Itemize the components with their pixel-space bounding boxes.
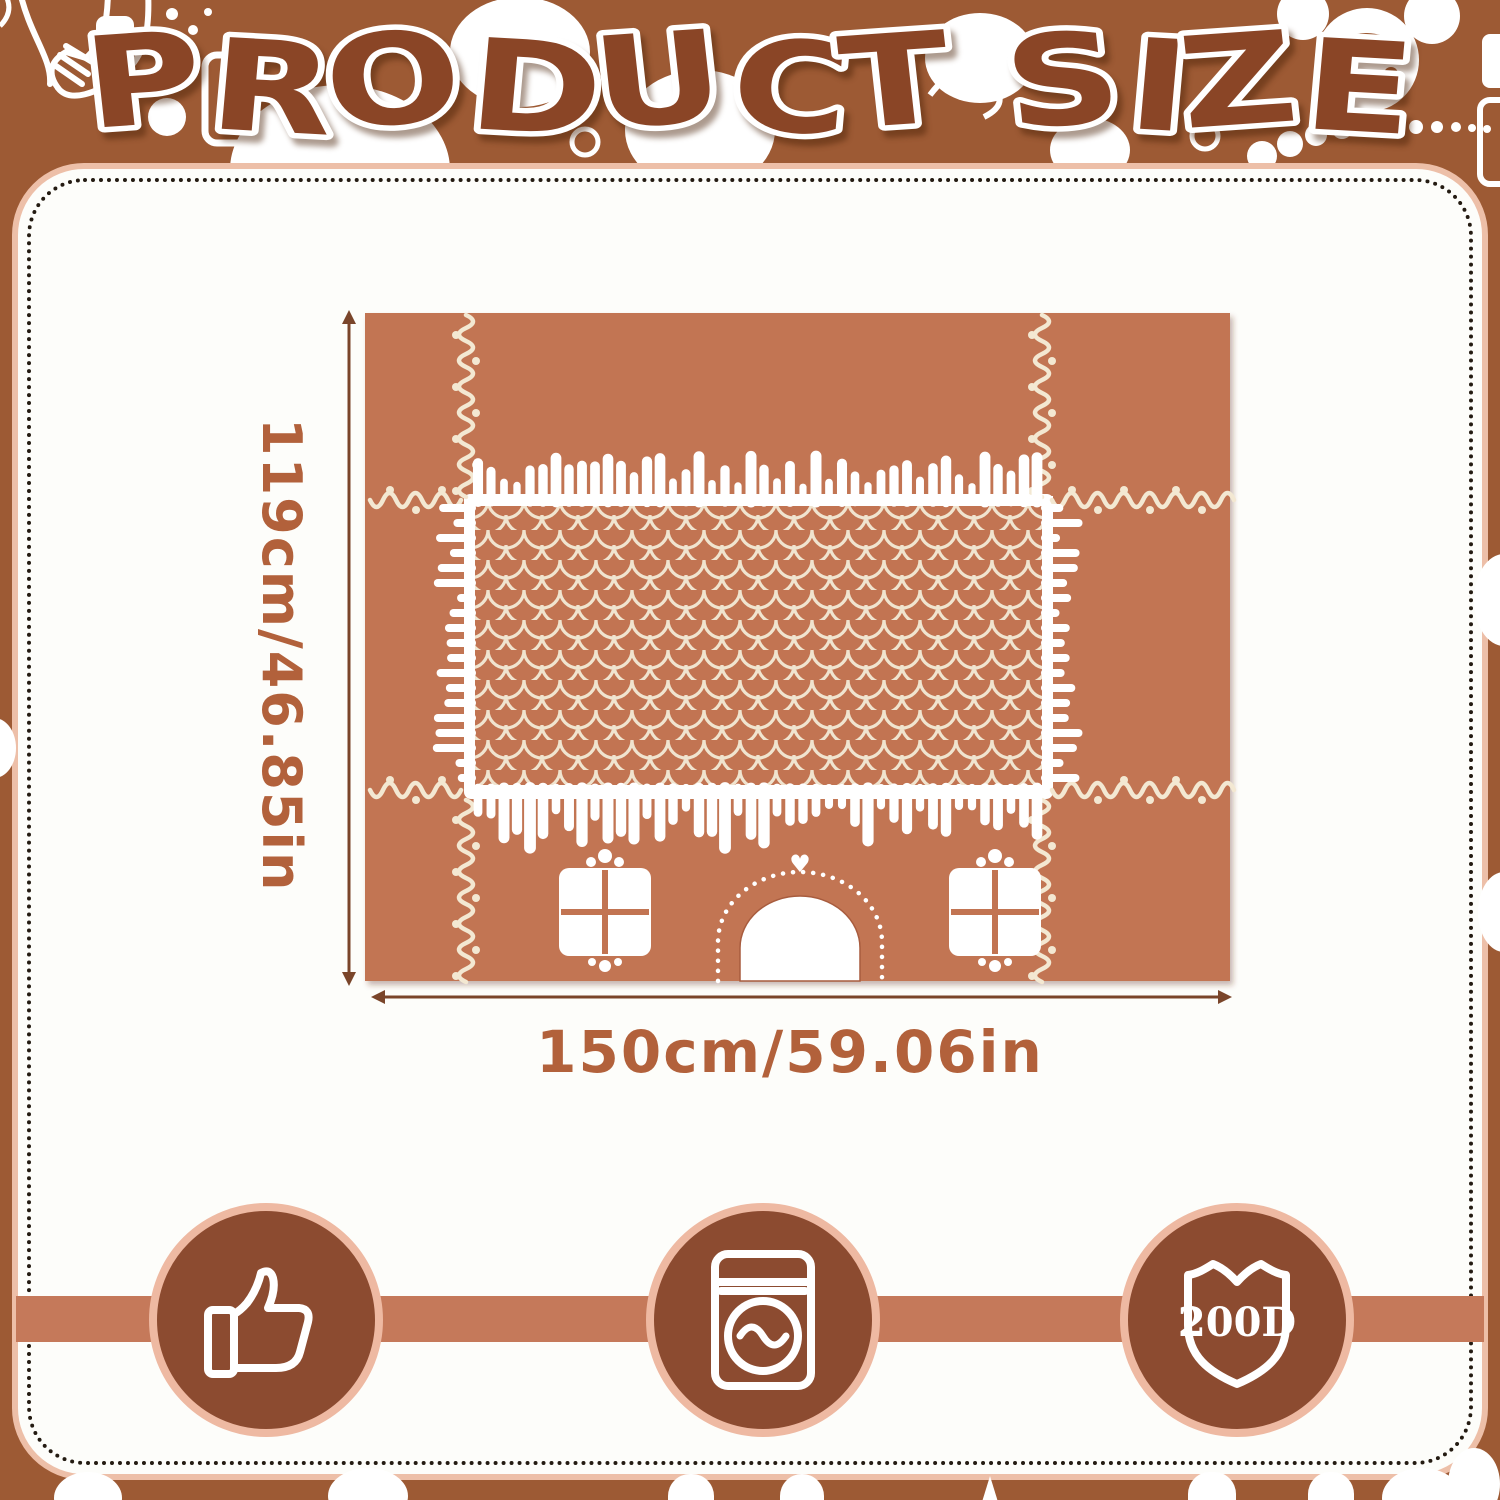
shield-label: 200D [1178, 1299, 1296, 1346]
width-arrow [371, 990, 1232, 1004]
badge-durable: 200D [1120, 1203, 1354, 1437]
washing-machine-icon [685, 1242, 841, 1398]
roof-shingles [470, 500, 1047, 793]
width-label: 150cm/59.06in [330, 1018, 1250, 1086]
shield-icon: 200D [1159, 1242, 1315, 1398]
product-size-infographic: PRODUCT SIZE ♥ [0, 0, 1500, 1500]
height-label: 119cm/46.85in [250, 382, 313, 928]
heart-icon: ♥ [789, 850, 811, 878]
height-arrow [342, 310, 356, 986]
thumbs-up-icon [191, 1245, 341, 1395]
product-diagram: ♥ [240, 290, 1250, 1080]
page-title: PRODUCT SIZE [0, 4, 1500, 174]
badge-quality [149, 1203, 383, 1437]
badge-washable [646, 1203, 880, 1437]
svg-text:PRODUCT SIZE: PRODUCT SIZE [80, 4, 1418, 167]
